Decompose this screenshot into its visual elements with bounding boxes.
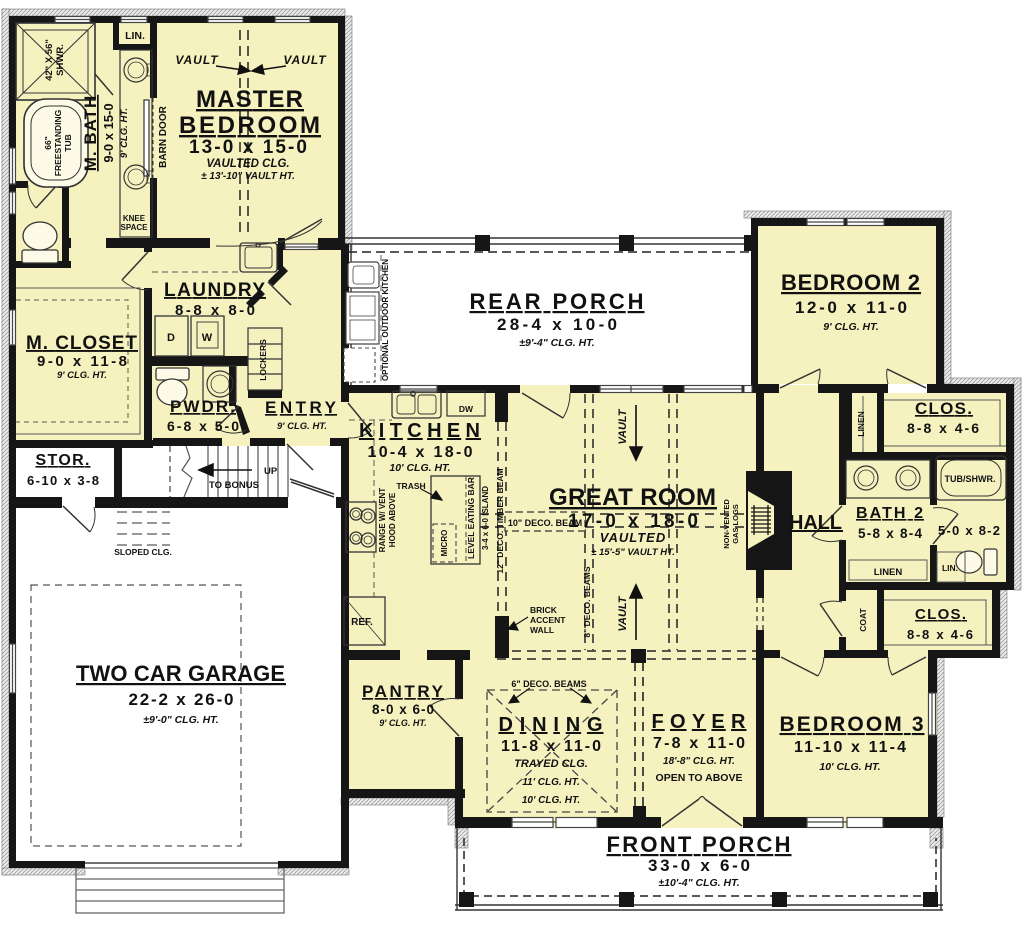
svg-text:LIN.: LIN. xyxy=(125,30,145,42)
svg-text:9-0 x 15-0: 9-0 x 15-0 xyxy=(101,103,116,162)
svg-text:VAULT: VAULT xyxy=(617,595,629,631)
svg-text:GAS LOGS: GAS LOGS xyxy=(731,504,740,544)
svg-text:BEDROOM 2: BEDROOM 2 xyxy=(781,270,921,295)
svg-text:VAULT: VAULT xyxy=(617,408,629,444)
svg-text:DW: DW xyxy=(459,404,474,414)
svg-text:8-8 x 8-0: 8-8 x 8-0 xyxy=(175,302,255,319)
svg-text:TUB: TUB xyxy=(63,134,73,151)
svg-text:10-4 x 18-0: 10-4 x 18-0 xyxy=(368,444,473,461)
svg-text:6-10 x 3-8: 6-10 x 3-8 xyxy=(27,473,99,488)
svg-text:CLOS.: CLOS. xyxy=(915,399,973,418)
svg-text:W: W xyxy=(202,332,213,344)
svg-text:9' CLG. HT.: 9' CLG. HT. xyxy=(57,370,107,381)
svg-text:BEDROOM: BEDROOM xyxy=(179,112,321,139)
svg-text:VAULT: VAULT xyxy=(283,53,327,67)
svg-text:SPACE: SPACE xyxy=(121,223,149,232)
svg-text:22-2 x 26-0: 22-2 x 26-0 xyxy=(129,690,234,709)
svg-text:GREAT ROOM: GREAT ROOM xyxy=(549,484,717,511)
svg-text:REAR PORCH: REAR PORCH xyxy=(470,289,645,314)
svg-text:HALL: HALL xyxy=(789,512,843,534)
svg-text:M. BATH: M. BATH xyxy=(81,95,100,172)
svg-text:6" DECO. BEAMS: 6" DECO. BEAMS xyxy=(511,679,586,689)
svg-text:M. CLOSET: M. CLOSET xyxy=(26,333,138,354)
svg-text:SHWR.: SHWR. xyxy=(55,44,66,76)
svg-text:5-0 x 8-2: 5-0 x 8-2 xyxy=(938,523,1000,538)
svg-text:18'-8" CLG. HT.: 18'-8" CLG. HT. xyxy=(663,756,735,767)
svg-text:FRONT PORCH: FRONT PORCH xyxy=(607,832,792,857)
svg-text:10" DECO. BEAM: 10" DECO. BEAM xyxy=(508,518,582,528)
svg-text:17-0 x 18-0: 17-0 x 18-0 xyxy=(568,511,698,532)
svg-text:LINEN: LINEN xyxy=(856,411,866,437)
svg-text:9' CLG. HT.: 9' CLG. HT. xyxy=(277,421,327,432)
svg-text:REF.: REF. xyxy=(351,617,373,628)
svg-text:TWO CAR GARAGE: TWO CAR GARAGE xyxy=(76,661,286,686)
svg-text:LEVEL EATING BAR: LEVEL EATING BAR xyxy=(466,477,476,559)
svg-text:BRICK: BRICK xyxy=(530,605,558,615)
svg-text:OPEN TO ABOVE: OPEN TO ABOVE xyxy=(656,772,743,784)
svg-text:8-8 x 4-6: 8-8 x 4-6 xyxy=(907,420,979,436)
svg-text:3-4 x 6-0 ISLAND: 3-4 x 6-0 ISLAND xyxy=(481,486,490,550)
svg-text:WALL: WALL xyxy=(530,625,554,635)
svg-text:TRASH: TRASH xyxy=(396,481,425,491)
svg-text:OPTIONAL OUTDOOR KITCHEN: OPTIONAL OUTDOOR KITCHEN xyxy=(381,259,390,381)
svg-text:VAULTED: VAULTED xyxy=(600,530,666,545)
svg-text:ACCENT: ACCENT xyxy=(530,615,566,625)
svg-text:TRAYED CLG.: TRAYED CLG. xyxy=(514,758,588,770)
svg-text:8-8 x 4-6: 8-8 x 4-6 xyxy=(907,627,973,642)
svg-text:66": 66" xyxy=(43,136,53,150)
svg-text:11' CLG. HT.: 11' CLG. HT. xyxy=(522,777,580,788)
svg-text:HOOD ABOVE: HOOD ABOVE xyxy=(388,492,397,547)
svg-text:VAULT: VAULT xyxy=(175,53,219,67)
svg-text:LOCKERS: LOCKERS xyxy=(258,339,268,381)
svg-text:RANGE W/ VENT: RANGE W/ VENT xyxy=(378,488,387,553)
svg-text:TO BONUS: TO BONUS xyxy=(209,480,259,491)
svg-text:12" DECO. TIMBER BEAM: 12" DECO. TIMBER BEAM xyxy=(495,468,505,573)
svg-text:± 13'-10" VAULT HT.: ± 13'-10" VAULT HT. xyxy=(201,171,295,182)
svg-text:8" DECO. BEAMS: 8" DECO. BEAMS xyxy=(582,566,592,637)
svg-text:UP: UP xyxy=(264,466,278,477)
svg-text:MASTER: MASTER xyxy=(196,86,304,113)
svg-text:±9'-4" CLG. HT.: ±9'-4" CLG. HT. xyxy=(519,337,595,349)
svg-text:10' CLG. HT.: 10' CLG. HT. xyxy=(522,795,580,806)
svg-text:FREESTANDING: FREESTANDING xyxy=(53,109,63,176)
svg-text:11-8 x 11-0: 11-8 x 11-0 xyxy=(501,738,601,755)
svg-text:BARN DOOR: BARN DOOR xyxy=(158,105,169,167)
svg-text:±9'-0" CLG. HT.: ±9'-0" CLG. HT. xyxy=(143,714,219,726)
svg-text:LAUNDRY: LAUNDRY xyxy=(164,280,266,301)
svg-text:10' CLG. HT.: 10' CLG. HT. xyxy=(819,761,880,773)
svg-text:9' CLG. HT.: 9' CLG. HT. xyxy=(823,321,878,333)
svg-text:13-0 x 15-0: 13-0 x 15-0 xyxy=(189,137,307,158)
svg-text:11-10 x 11-4: 11-10 x 11-4 xyxy=(794,739,906,756)
svg-text:MICRO: MICRO xyxy=(440,530,449,557)
svg-text:± 15'-5" VAULT HT.: ± 15'-5" VAULT HT. xyxy=(591,547,675,558)
svg-text:PWDR.: PWDR. xyxy=(170,397,236,416)
svg-text:COAT: COAT xyxy=(858,607,868,631)
svg-text:8-0 x 6-0: 8-0 x 6-0 xyxy=(372,702,434,717)
svg-text:D: D xyxy=(167,332,175,344)
svg-text:CLOS.: CLOS. xyxy=(915,606,967,623)
svg-text:ENTRY: ENTRY xyxy=(265,398,337,417)
svg-text:±10'-4" CLG. HT.: ±10'-4" CLG. HT. xyxy=(658,877,739,889)
svg-text:NON-VENTED: NON-VENTED xyxy=(722,499,731,549)
svg-text:42" X 56": 42" X 56" xyxy=(44,39,55,81)
svg-text:5-8 x 8-4: 5-8 x 8-4 xyxy=(858,526,922,541)
svg-text:SLOPED CLG.: SLOPED CLG. xyxy=(114,547,172,557)
svg-text:12-0 x 11-0: 12-0 x 11-0 xyxy=(795,298,907,317)
svg-text:TUB/SHWR.: TUB/SHWR. xyxy=(945,474,996,484)
svg-text:6-8 x 5-0: 6-8 x 5-0 xyxy=(167,418,239,434)
svg-text:KNEE: KNEE xyxy=(123,214,146,223)
svg-text:VAULTED CLG.: VAULTED CLG. xyxy=(206,158,289,170)
svg-text:BATH 2: BATH 2 xyxy=(856,505,924,522)
svg-text:BEDROOM 3: BEDROOM 3 xyxy=(780,713,925,736)
svg-text:LINEN: LINEN xyxy=(874,567,903,578)
svg-text:STOR.: STOR. xyxy=(36,452,91,469)
svg-text:9' CLG. HT.: 9' CLG. HT. xyxy=(379,718,426,728)
svg-text:LIN.: LIN. xyxy=(942,563,958,573)
svg-text:9' CLG. HT.: 9' CLG. HT. xyxy=(119,108,130,158)
svg-text:10' CLG. HT.: 10' CLG. HT. xyxy=(389,462,450,474)
svg-text:28-4 x 10-0: 28-4 x 10-0 xyxy=(497,315,617,334)
